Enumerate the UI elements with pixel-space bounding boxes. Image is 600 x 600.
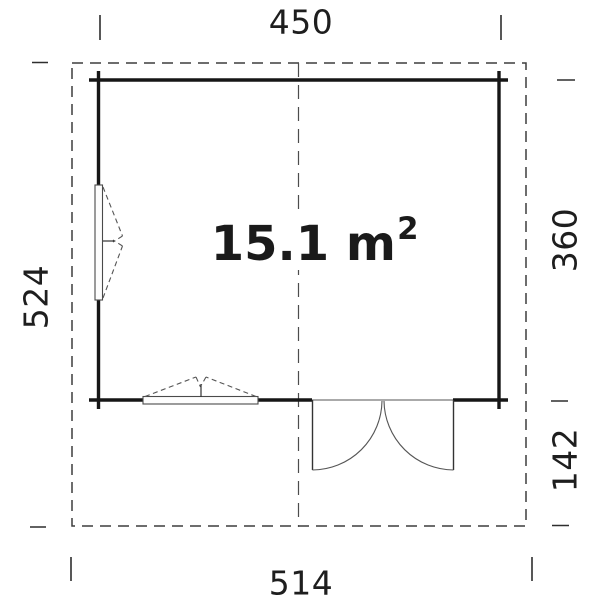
dimension-right-lower-height: 142 <box>549 428 582 493</box>
floor-area-value: 15.1 m <box>211 216 396 272</box>
door-swing-arcs <box>313 401 454 470</box>
left-window-frame <box>95 185 103 300</box>
door-leaves <box>313 400 454 470</box>
dimension-left-height: 524 <box>20 265 53 330</box>
floor-area-label: 15.1 m2 <box>203 216 426 270</box>
left-window-opening-dashes <box>103 187 123 298</box>
dimension-top-width: 450 <box>269 6 334 39</box>
floor-plan-drawing <box>0 0 600 600</box>
dimension-bottom-width: 514 <box>269 567 334 600</box>
floor-area-superscript: 2 <box>397 211 418 247</box>
bottom-window-frame <box>143 397 258 405</box>
floor-plan: 450 524 360 142 514 15.1 m2 <box>0 0 600 600</box>
dimension-right-upper-height: 360 <box>549 208 582 273</box>
